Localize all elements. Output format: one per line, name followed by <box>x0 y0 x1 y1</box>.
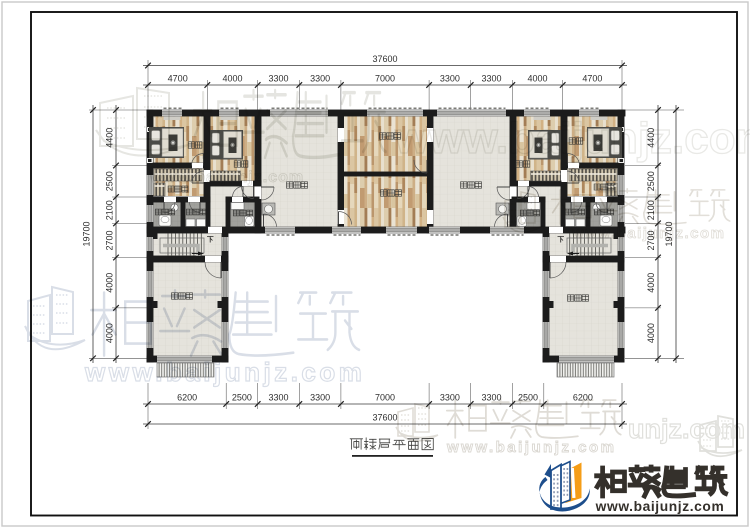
svg-text:www.baijunjz.com: www.baijunjz.com <box>595 499 725 514</box>
svg-text:4000: 4000 <box>222 74 242 84</box>
svg-text:3300: 3300 <box>310 393 330 403</box>
svg-text:3300: 3300 <box>268 74 288 84</box>
svg-text:2500: 2500 <box>646 171 656 191</box>
svg-text:www.baijunjz.com: www.baijunjz.com <box>84 357 365 387</box>
svg-text:2100: 2100 <box>646 200 656 220</box>
svg-text:3300: 3300 <box>440 74 460 84</box>
svg-text:4000: 4000 <box>646 323 656 343</box>
svg-text:www.baijunjz.com: www.baijunjz.com <box>149 169 304 186</box>
svg-text:2500: 2500 <box>104 171 114 191</box>
svg-text:3300: 3300 <box>481 393 501 403</box>
svg-text:3300: 3300 <box>440 393 460 403</box>
svg-text:2100: 2100 <box>105 200 115 220</box>
svg-text:4000: 4000 <box>105 323 115 343</box>
svg-text:19700: 19700 <box>82 221 92 246</box>
svg-text:7000: 7000 <box>375 74 395 84</box>
svg-text:4700: 4700 <box>168 74 188 84</box>
svg-text:6200: 6200 <box>177 393 197 403</box>
svg-text:3300: 3300 <box>310 74 330 84</box>
svg-text:2500: 2500 <box>232 393 252 403</box>
svg-text:www.baijunjz.com: www.baijunjz.com <box>571 225 725 242</box>
svg-text:7000: 7000 <box>375 393 395 403</box>
svg-text:3300: 3300 <box>481 74 501 84</box>
svg-text:37600: 37600 <box>372 54 397 64</box>
svg-text:4000: 4000 <box>105 273 115 293</box>
svg-text:4000: 4000 <box>646 273 656 293</box>
svg-text:www.baijunjz.com: www.baijunjz.com <box>446 439 616 456</box>
svg-text:4700: 4700 <box>582 74 602 84</box>
svg-text:2700: 2700 <box>104 230 114 250</box>
svg-text:4000: 4000 <box>527 74 547 84</box>
svg-text:www.baijunjz.com: www.baijunjz.com <box>394 114 750 163</box>
svg-text:3300: 3300 <box>268 393 288 403</box>
svg-text:37600: 37600 <box>372 413 397 423</box>
